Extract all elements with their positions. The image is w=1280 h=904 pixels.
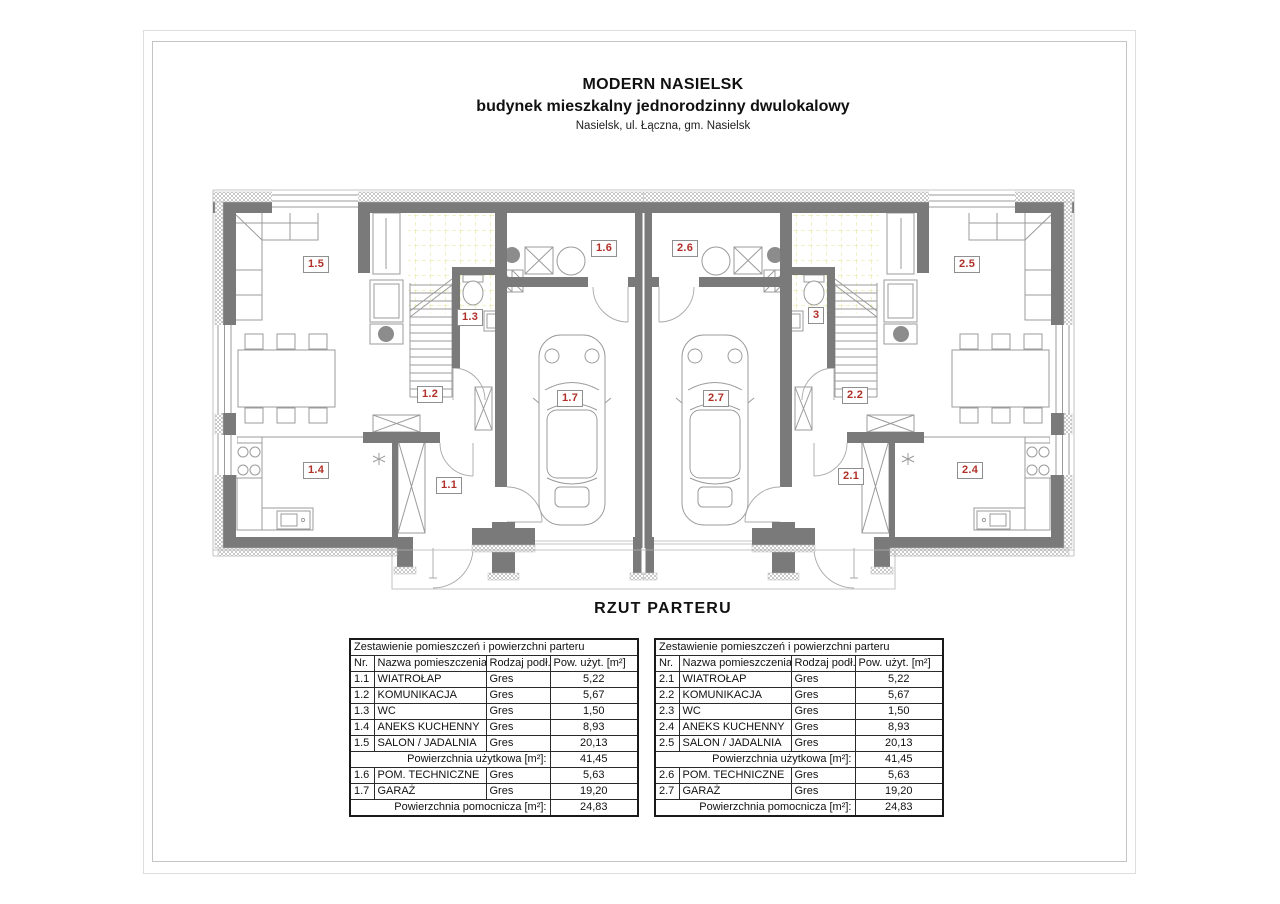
table-row: 1.3 WC Gres 1,50 [350,704,638,720]
usable-area-value: 41,45 [855,752,943,768]
room-schedule-right: Zestawienie pomieszczeń i powierzchni pa… [654,638,944,817]
project-address: Nasielsk, ul. Łączna, gm. Nasielsk [363,118,963,134]
cell-name: KOMUNIKACJA [679,688,791,704]
cell-floor: Gres [791,672,855,688]
cell-floor: Gres [791,688,855,704]
floor-plan: 1.5 1.3 1.6 2.6 3 2.5 1.2 1.7 2.7 2.2 1.… [205,185,1075,595]
floor-plan-drawing [205,185,1075,595]
cell-floor: Gres [486,720,550,736]
room-label-2-6: 2.6 [672,240,698,257]
cell-nr: 2.5 [655,736,679,752]
cell-floor: Gres [791,768,855,784]
cell-name: SALON / JADALNIA [679,736,791,752]
table-row: 2.4 ANEKS KUCHENNY Gres 8,93 [655,720,943,736]
room-label-1-4: 1.4 [303,462,329,479]
plan-caption: RZUT PARTERU [363,600,963,618]
cell-nr: 1.5 [350,736,374,752]
porch-outline [392,550,895,589]
table-title: Zestawienie pomieszczeń i powierzchni pa… [655,639,943,656]
col-header-nr: Nr. [655,656,679,672]
table-row: 2.6 POM. TECHNICZNE Gres 5,63 [655,768,943,784]
room-label-1-7: 1.7 [557,390,583,407]
col-header-nr: Nr. [350,656,374,672]
room-label-2-3: 3 [808,307,824,324]
cell-nr: 1.2 [350,688,374,704]
summary-row-usable: Powierzchnia użytkowa [m²]: 41,45 [655,752,943,768]
title-block: MODERN NASIELSK budynek mieszkalny jedno… [363,74,963,134]
table-row: 1.4 ANEKS KUCHENNY Gres 8,93 [350,720,638,736]
col-header-name: Nazwa pomieszczenia [679,656,791,672]
cell-nr: 1.4 [350,720,374,736]
cell-floor: Gres [486,768,550,784]
cell-name: GARAŻ [679,784,791,800]
cell-area: 5,22 [855,672,943,688]
project-subtitle: budynek mieszkalny jednorodzinny dwuloka… [363,96,963,118]
cell-name: KOMUNIKACJA [374,688,486,704]
cell-name: POM. TECHNICZNE [679,768,791,784]
cell-area: 8,93 [550,720,638,736]
usable-area-value: 41,45 [550,752,638,768]
room-schedule-left: Zestawienie pomieszczeń i powierzchni pa… [349,638,639,817]
cell-nr: 1.7 [350,784,374,800]
page: { "page": { "title_line1": "MODERN NASIE… [0,0,1280,904]
summary-row-aux: Powierzchnia pomocnicza [m²]: 24,83 [655,800,943,817]
cell-nr: 2.3 [655,704,679,720]
room-label-1-5: 1.5 [303,256,329,273]
cell-name: ANEKS KUCHENNY [679,720,791,736]
cell-floor: Gres [486,672,550,688]
room-label-1-1: 1.1 [436,477,462,494]
room-label-2-2: 2.2 [842,387,868,404]
cell-name: WC [374,704,486,720]
table-row: 2.7 GARAŻ Gres 19,20 [655,784,943,800]
room-label-1-2: 1.2 [417,386,443,403]
cell-area: 20,13 [855,736,943,752]
table-title: Zestawienie pomieszczeń i powierzchni pa… [350,639,638,656]
room-label-2-5: 2.5 [954,256,980,273]
room-label-2-1: 2.1 [838,468,864,485]
room-label-1-3: 1.3 [457,309,483,326]
cell-floor: Gres [791,704,855,720]
cell-area: 19,20 [855,784,943,800]
aux-area-label: Powierzchnia pomocnicza [m²]: [350,800,550,817]
col-header-floor: Rodzaj podł. [791,656,855,672]
cell-nr: 1.3 [350,704,374,720]
aux-area-label: Powierzchnia pomocnicza [m²]: [655,800,855,817]
cell-floor: Gres [486,784,550,800]
cell-name: GARAŻ [374,784,486,800]
cell-area: 1,50 [550,704,638,720]
table-row: 2.5 SALON / JADALNIA Gres 20,13 [655,736,943,752]
cell-floor: Gres [791,784,855,800]
room-label-1-6: 1.6 [591,240,617,257]
summary-row-usable: Powierzchnia użytkowa [m²]: 41,45 [350,752,638,768]
cell-nr: 2.1 [655,672,679,688]
cell-floor: Gres [486,688,550,704]
cell-name: SALON / JADALNIA [374,736,486,752]
cell-area: 20,13 [550,736,638,752]
table-row: 1.1 WIATROŁAP Gres 5,22 [350,672,638,688]
cell-nr: 2.2 [655,688,679,704]
room-label-2-7: 2.7 [703,390,729,407]
table-row: 1.7 GARAŻ Gres 19,20 [350,784,638,800]
cell-area: 19,20 [550,784,638,800]
cell-name: POM. TECHNICZNE [374,768,486,784]
table-row: 1.6 POM. TECHNICZNE Gres 5,63 [350,768,638,784]
table-row: 1.2 KOMUNIKACJA Gres 5,67 [350,688,638,704]
usable-area-label: Powierzchnia użytkowa [m²]: [655,752,855,768]
cell-name: WIATROŁAP [679,672,791,688]
cell-floor: Gres [486,736,550,752]
room-label-2-4: 2.4 [957,462,983,479]
table-row: 2.2 KOMUNIKACJA Gres 5,67 [655,688,943,704]
col-header-floor: Rodzaj podł. [486,656,550,672]
cell-name: WC [679,704,791,720]
cell-name: ANEKS KUCHENNY [374,720,486,736]
cell-area: 5,22 [550,672,638,688]
project-title: MODERN NASIELSK [363,74,963,96]
col-header-area: Pow. użyt. [m²] [550,656,638,672]
cell-area: 1,50 [855,704,943,720]
cell-area: 8,93 [855,720,943,736]
cell-name: WIATROŁAP [374,672,486,688]
cell-nr: 2.6 [655,768,679,784]
summary-row-aux: Powierzchnia pomocnicza [m²]: 24,83 [350,800,638,817]
table-row: 1.5 SALON / JADALNIA Gres 20,13 [350,736,638,752]
aux-area-value: 24,83 [550,800,638,817]
col-header-area: Pow. użyt. [m²] [855,656,943,672]
cell-area: 5,67 [855,688,943,704]
cell-floor: Gres [791,736,855,752]
cell-area: 5,67 [550,688,638,704]
cell-floor: Gres [791,720,855,736]
col-header-name: Nazwa pomieszczenia [374,656,486,672]
table-row: 2.1 WIATROŁAP Gres 5,22 [655,672,943,688]
cell-nr: 2.4 [655,720,679,736]
cell-floor: Gres [486,704,550,720]
usable-area-label: Powierzchnia użytkowa [m²]: [350,752,550,768]
table-row: 2.3 WC Gres 1,50 [655,704,943,720]
cell-nr: 1.6 [350,768,374,784]
cell-nr: 2.7 [655,784,679,800]
cell-nr: 1.1 [350,672,374,688]
cell-area: 5,63 [855,768,943,784]
aux-area-value: 24,83 [855,800,943,817]
cell-area: 5,63 [550,768,638,784]
